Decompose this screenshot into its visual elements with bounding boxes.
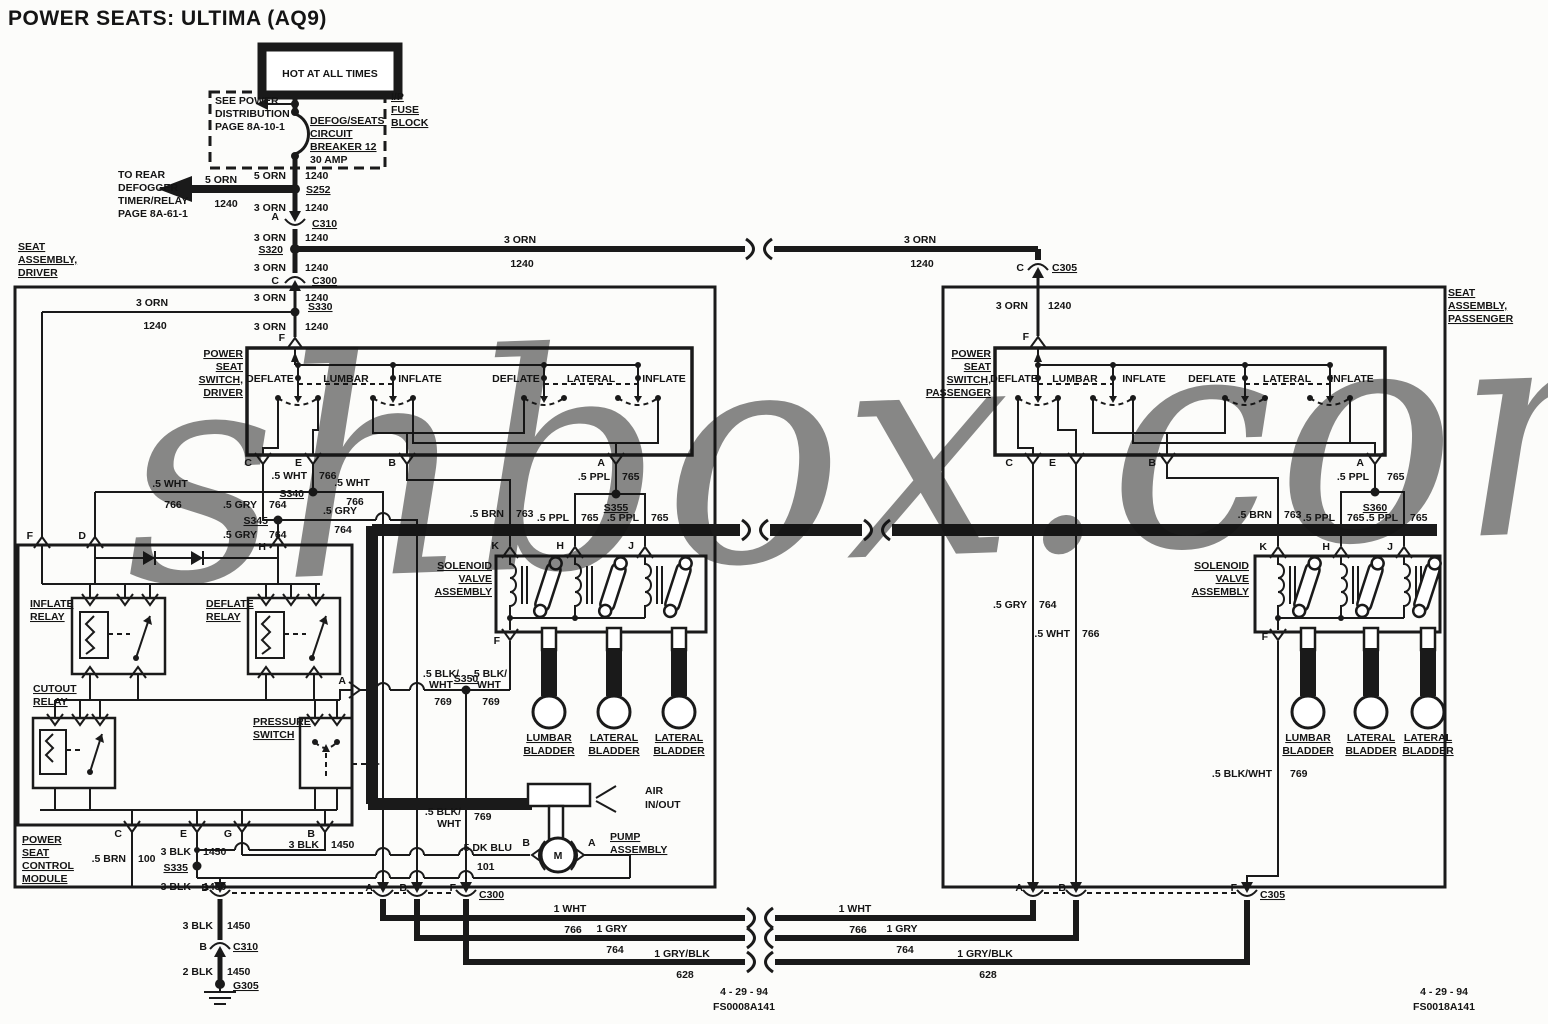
connector-a-c300 — [373, 882, 393, 896]
splice-label: S335 — [163, 862, 188, 874]
svg-text:DEFOGGER: DEFOGGER — [118, 182, 179, 194]
svg-text:F: F — [1231, 882, 1238, 894]
wire-break-icon — [746, 239, 772, 259]
inflate-relay-label: INFLATE — [30, 598, 74, 610]
svg-text:766: 766 — [849, 924, 867, 936]
svg-text:1450: 1450 — [203, 846, 227, 858]
pin-label: A — [1015, 882, 1023, 894]
wire-label: 5 ORN — [205, 174, 237, 186]
svg-text:F: F — [450, 882, 457, 894]
lateral-bladder — [1412, 696, 1444, 728]
breaker-label: DEFOG/SEATS — [310, 115, 384, 127]
pin-label: A — [338, 675, 346, 687]
fuse-block-label: I/P — [391, 91, 404, 103]
pin-label: B — [199, 941, 207, 953]
pin-label: D — [201, 882, 209, 894]
lateral-bladder — [663, 696, 695, 728]
svg-text:1 WHT: 1 WHT — [554, 903, 587, 915]
wire-label: 5 ORN — [254, 170, 286, 182]
svg-text:1240: 1240 — [910, 258, 934, 270]
svg-text:3 BLK: 3 BLK — [289, 839, 320, 851]
svg-text:PAGE 8A-10-1: PAGE 8A-10-1 — [215, 121, 285, 133]
svg-text:B: B — [399, 882, 407, 894]
svg-text:BLADDER: BLADDER — [588, 745, 640, 757]
splice-s335 — [193, 862, 202, 871]
lumbar-bladder — [1292, 696, 1324, 728]
svg-text:1450: 1450 — [331, 839, 355, 851]
svg-text:764: 764 — [896, 944, 914, 956]
svg-text:1450: 1450 — [227, 920, 251, 932]
svg-text:.5 BLK/WHT: .5 BLK/WHT — [1212, 768, 1273, 780]
svg-text:A: A — [365, 882, 373, 894]
svg-text:B: B — [1058, 882, 1066, 894]
pump-assembly-label: PUMP — [610, 831, 640, 843]
relay-coil-icon — [46, 734, 53, 762]
lateral-bladder — [1355, 696, 1387, 728]
svg-text:769: 769 — [434, 696, 452, 708]
circuit-breaker-symbol — [295, 114, 309, 154]
svg-text:DRIVER: DRIVER — [18, 267, 58, 279]
svg-text:1 GRY/BLK: 1 GRY/BLK — [654, 948, 710, 960]
svg-text:DISTRIBUTION: DISTRIBUTION — [215, 108, 290, 120]
svg-text:BLADDER: BLADDER — [1402, 745, 1454, 757]
svg-text:101: 101 — [477, 861, 495, 873]
connector-label: C300 — [479, 889, 504, 901]
svg-text:3 BLK: 3 BLK — [161, 881, 192, 893]
air-manifold — [528, 784, 590, 806]
svg-text:IN/OUT: IN/OUT — [645, 799, 681, 811]
svg-text:FUSE: FUSE — [391, 104, 419, 116]
svg-text:1 WHT: 1 WHT — [839, 903, 872, 915]
svg-text:1240: 1240 — [305, 262, 329, 274]
svg-text:TIMER/RELAY: TIMER/RELAY — [118, 195, 188, 207]
svg-text:RELAY: RELAY — [30, 611, 65, 623]
svg-text:1240: 1240 — [510, 258, 534, 270]
svg-text:.5 WHT: .5 WHT — [1034, 628, 1070, 640]
see-power-label: SEE POWER — [215, 95, 279, 107]
svg-text:766: 766 — [564, 924, 582, 936]
wire-break-icon — [747, 952, 773, 972]
connector-label: C305 — [1260, 889, 1285, 901]
svg-text:BREAKER 12: BREAKER 12 — [310, 141, 377, 153]
bladder-label: LATERAL — [1404, 732, 1453, 744]
bladder-label: LUMBAR — [526, 732, 572, 744]
footer-code: FS0008A141 — [713, 1001, 775, 1013]
svg-text:SWITCH: SWITCH — [253, 729, 294, 741]
svg-text:3 BLK: 3 BLK — [183, 920, 214, 932]
wire-break-icon — [747, 928, 773, 948]
svg-text:1240: 1240 — [305, 202, 329, 214]
svg-text:3 ORN: 3 ORN — [254, 262, 286, 274]
svg-text:MODULE: MODULE — [22, 873, 68, 885]
svg-text:1 GRY: 1 GRY — [596, 923, 627, 935]
svg-text:2 BLK: 2 BLK — [183, 966, 214, 978]
svg-text:G: G — [224, 828, 232, 840]
wiring-diagram-page: POWER SEATS: ULTIMA (AQ9) HOT AT ALL TIM… — [0, 0, 1548, 1024]
svg-text:769: 769 — [1290, 768, 1308, 780]
svg-text:.5 BRN: .5 BRN — [92, 853, 126, 865]
seat-assembly-driver-label: SEAT — [18, 241, 46, 253]
svg-text:WHT: WHT — [477, 679, 501, 691]
connector-label: C310 — [233, 941, 258, 953]
svg-text:CIRCUIT: CIRCUIT — [310, 128, 353, 140]
svg-text:628: 628 — [979, 969, 997, 981]
lumbar-bladder — [533, 696, 565, 728]
bladder-label: LATERAL — [590, 732, 639, 744]
svg-text:PAGE 8A-61-1: PAGE 8A-61-1 — [118, 208, 188, 220]
module-label: POWER — [22, 834, 62, 846]
svg-text:769: 769 — [482, 696, 500, 708]
svg-text:BLADDER: BLADDER — [1282, 745, 1334, 757]
ground-label: G305 — [233, 980, 259, 992]
circuit-number: 1240 — [305, 170, 329, 182]
pin-label: B — [522, 837, 530, 849]
svg-text:BLADDER: BLADDER — [1345, 745, 1397, 757]
pin-label: C — [114, 828, 122, 840]
pin-label: C — [271, 275, 279, 287]
svg-text:3 ORN: 3 ORN — [254, 202, 286, 214]
pump-assembly — [528, 784, 616, 872]
pin-label: A — [588, 837, 596, 849]
svg-text:SEAT: SEAT — [22, 847, 50, 859]
svg-text:WHT: WHT — [429, 679, 453, 691]
pressure-switch-label: PRESSURE — [253, 716, 311, 728]
svg-text:628: 628 — [676, 969, 694, 981]
connector-b-c300 — [407, 882, 427, 896]
air-label: AIR — [645, 785, 664, 797]
svg-text:1 GRY: 1 GRY — [886, 923, 917, 935]
svg-text:RELAY: RELAY — [33, 696, 68, 708]
connector-label: C300 — [312, 275, 337, 287]
wire-break-icon — [747, 908, 773, 928]
lateral-bladder — [598, 696, 630, 728]
pin-label: F — [1262, 631, 1269, 643]
svg-text:WHT: WHT — [437, 818, 461, 830]
to-rear-label: TO REAR — [118, 169, 165, 181]
relay-coil-icon — [86, 616, 94, 654]
connector-c310-top — [285, 211, 305, 225]
cutout-relay-label: CUTOUT — [33, 683, 77, 695]
svg-text:3 ORN: 3 ORN — [504, 234, 536, 246]
splice-label: S252 — [306, 184, 331, 196]
bladder-label: LATERAL — [655, 732, 704, 744]
watermark: shbox.com — [117, 248, 1548, 653]
svg-text:.5 BLK/: .5 BLK/ — [425, 806, 461, 818]
svg-text:ASSEMBLY,: ASSEMBLY, — [18, 254, 77, 266]
svg-text:D: D — [78, 530, 86, 542]
footer-date: 4 - 29 - 94 — [1420, 986, 1468, 998]
svg-text:1 GRY/BLK: 1 GRY/BLK — [957, 948, 1013, 960]
footer-date: 4 - 29 - 94 — [720, 986, 768, 998]
svg-text:BLADDER: BLADDER — [523, 745, 575, 757]
wiring-diagram: POWER SEATS: ULTIMA (AQ9) HOT AT ALL TIM… — [0, 0, 1548, 1024]
svg-text:1240: 1240 — [305, 232, 329, 244]
splice-label: S320 — [258, 244, 283, 256]
hot-label: HOT AT ALL TIMES — [282, 68, 378, 80]
svg-text:764: 764 — [606, 944, 624, 956]
footer-code: FS0018A141 — [1413, 1001, 1475, 1013]
connector-label: C310 — [312, 218, 337, 230]
pin-label: A — [271, 211, 279, 223]
svg-text:.5 DK BLU: .5 DK BLU — [461, 842, 512, 854]
circuit-number: 1240 — [214, 198, 238, 210]
svg-text:30 AMP: 30 AMP — [310, 154, 348, 166]
svg-text:769: 769 — [474, 811, 492, 823]
motor-label: M — [554, 850, 563, 862]
connector-f-c300 — [456, 882, 476, 896]
svg-text:3 ORN: 3 ORN — [254, 232, 286, 244]
bladder-label: LATERAL — [1347, 732, 1396, 744]
pin-label: F — [27, 530, 34, 542]
bladder-label: LUMBAR — [1285, 732, 1331, 744]
svg-text:ASSEMBLY: ASSEMBLY — [610, 844, 667, 856]
svg-text:E: E — [180, 828, 187, 840]
svg-text:3 ORN: 3 ORN — [904, 234, 936, 246]
cutout-relay-box — [33, 718, 115, 788]
svg-text:766: 766 — [1082, 628, 1100, 640]
svg-text:3 BLK: 3 BLK — [161, 846, 192, 858]
svg-text:BLADDER: BLADDER — [653, 745, 705, 757]
svg-text:BLOCK: BLOCK — [391, 117, 429, 129]
svg-text:CONTROL: CONTROL — [22, 860, 74, 872]
svg-text:100: 100 — [138, 853, 156, 865]
page-title: POWER SEATS: ULTIMA (AQ9) — [8, 7, 327, 30]
svg-text:1450: 1450 — [227, 966, 251, 978]
